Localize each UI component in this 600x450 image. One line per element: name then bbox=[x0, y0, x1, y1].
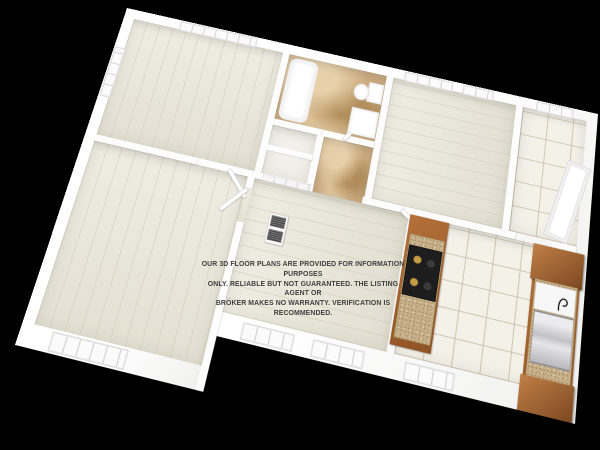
floor-plan bbox=[15, 8, 598, 450]
disclaimer-line-3: BROKER MAKES NO WARRANTY. VERIFICATION I… bbox=[197, 299, 409, 319]
disclaimer-text: OUR 3D FLOOR PLANS ARE PROVIDED FOR INFO… bbox=[197, 260, 409, 319]
floorplan-3d-render: OUR 3D FLOOR PLANS ARE PROVIDED FOR INFO… bbox=[0, 0, 600, 450]
disclaimer-line-1: OUR 3D FLOOR PLANS ARE PROVIDED FOR INFO… bbox=[197, 260, 409, 280]
stainless-appliance bbox=[529, 310, 574, 372]
disclaimer-line-2: ONLY. RELIABLE BUT NOT GUARANTEED. THE L… bbox=[197, 280, 409, 300]
faucet-icon bbox=[555, 289, 573, 316]
